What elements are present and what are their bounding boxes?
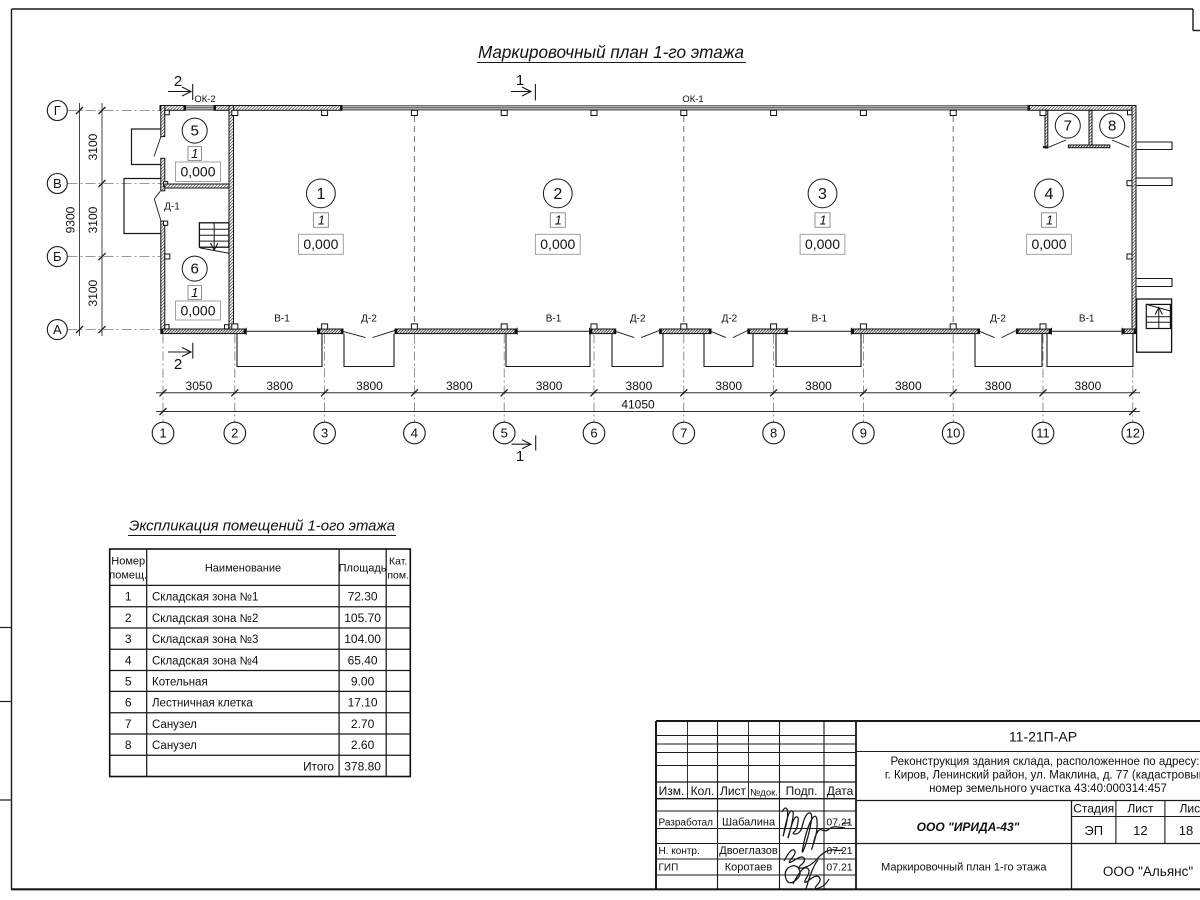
svg-text:3100: 3100 bbox=[86, 133, 100, 160]
svg-text:Экспликация помещений 1-ого эт: Экспликация помещений 1-ого этажа bbox=[129, 519, 395, 535]
svg-text:Лестничная клетка: Лестничная клетка bbox=[152, 698, 253, 710]
svg-text:Д-1: Д-1 bbox=[164, 202, 180, 213]
svg-text:Д-2: Д-2 bbox=[990, 314, 1006, 325]
svg-text:3800: 3800 bbox=[356, 379, 383, 393]
svg-text:3: 3 bbox=[321, 426, 328, 441]
svg-text:1: 1 bbox=[555, 213, 562, 228]
svg-text:41050: 41050 bbox=[621, 398, 655, 412]
svg-text:1: 1 bbox=[516, 72, 524, 89]
svg-text:Складская зона №1: Складская зона №1 bbox=[152, 592, 258, 604]
svg-text:помещ.: помещ. bbox=[109, 570, 147, 582]
svg-text:8: 8 bbox=[770, 426, 777, 441]
svg-text:104.00: 104.00 bbox=[344, 632, 381, 646]
svg-text:2: 2 bbox=[125, 611, 132, 625]
svg-text:3100: 3100 bbox=[86, 279, 100, 306]
svg-text:номер земельного участка 43:40: номер земельного участка 43:40:000314:45… bbox=[929, 783, 1167, 795]
svg-text:5: 5 bbox=[191, 123, 199, 140]
svg-text:Изм.: Изм. bbox=[659, 784, 685, 798]
svg-text:Маркировочный план 1-го этажа: Маркировочный план 1-го этажа bbox=[478, 43, 744, 62]
svg-text:2: 2 bbox=[231, 426, 238, 441]
svg-text:4: 4 bbox=[411, 426, 418, 441]
svg-text:9300: 9300 bbox=[64, 206, 78, 233]
svg-text:0,000: 0,000 bbox=[540, 236, 575, 252]
svg-text:2: 2 bbox=[553, 186, 562, 203]
svg-text:Разработал: Разработал bbox=[659, 817, 714, 829]
svg-text:В-1: В-1 bbox=[812, 314, 828, 325]
svg-text:1: 1 bbox=[191, 146, 198, 161]
svg-text:Санузел: Санузел bbox=[152, 740, 197, 752]
svg-text:Листов: Листов bbox=[1180, 802, 1200, 816]
svg-text:378.80: 378.80 bbox=[344, 760, 381, 774]
svg-text:Двоеглазов: Двоеглазов bbox=[719, 845, 778, 857]
svg-text:9: 9 bbox=[860, 426, 867, 441]
svg-text:3050: 3050 bbox=[186, 379, 213, 393]
svg-text:1: 1 bbox=[318, 213, 325, 228]
svg-text:0,000: 0,000 bbox=[303, 236, 338, 252]
svg-text:105.70: 105.70 bbox=[344, 611, 381, 625]
svg-text:2.70: 2.70 bbox=[351, 717, 375, 731]
svg-text:Г: Г bbox=[54, 103, 61, 118]
svg-text:№док.: №док. bbox=[750, 788, 778, 799]
svg-text:пом.: пом. bbox=[387, 570, 409, 582]
svg-text:Котельная: Котельная bbox=[152, 677, 208, 689]
svg-text:ОК-2: ОК-2 bbox=[194, 94, 215, 105]
svg-text:3800: 3800 bbox=[266, 379, 293, 393]
svg-text:А: А bbox=[53, 322, 62, 337]
svg-text:Кол.: Кол. bbox=[691, 784, 715, 798]
svg-text:17.10: 17.10 bbox=[348, 696, 378, 710]
svg-text:Подп.: Подп. bbox=[786, 784, 818, 798]
svg-text:3100: 3100 bbox=[86, 206, 100, 233]
svg-text:В-1: В-1 bbox=[1079, 314, 1095, 325]
svg-text:Наименование: Наименование bbox=[205, 563, 281, 575]
svg-text:3800: 3800 bbox=[626, 379, 653, 393]
svg-text:Реконструкция здания склада, р: Реконструкция здания склада, расположенн… bbox=[890, 756, 1199, 768]
svg-text:65.40: 65.40 bbox=[348, 653, 378, 667]
svg-text:07.21: 07.21 bbox=[826, 862, 852, 874]
svg-text:1: 1 bbox=[159, 426, 166, 441]
svg-text:0,000: 0,000 bbox=[180, 164, 215, 180]
svg-text:3800: 3800 bbox=[895, 379, 922, 393]
svg-text:12: 12 bbox=[1126, 426, 1140, 441]
svg-text:6: 6 bbox=[191, 261, 199, 278]
svg-text:Итого: Итого bbox=[303, 760, 334, 774]
svg-text:ЭП: ЭП bbox=[1084, 823, 1103, 838]
svg-text:5: 5 bbox=[125, 675, 132, 689]
svg-text:3800: 3800 bbox=[805, 379, 832, 393]
svg-text:Д-2: Д-2 bbox=[630, 314, 646, 325]
svg-text:7: 7 bbox=[680, 426, 687, 441]
svg-text:2: 2 bbox=[174, 356, 182, 373]
svg-text:Кат.: Кат. bbox=[389, 556, 407, 568]
svg-text:6: 6 bbox=[590, 426, 597, 441]
svg-text:72.30: 72.30 bbox=[348, 590, 378, 604]
svg-text:ООО "ИРИДА-43": ООО "ИРИДА-43" bbox=[917, 820, 1020, 834]
svg-text:ОК-1: ОК-1 bbox=[682, 94, 703, 105]
svg-text:7: 7 bbox=[125, 717, 132, 731]
svg-text:2.60: 2.60 bbox=[351, 738, 375, 752]
svg-text:ООО "Альянс": ООО "Альянс" bbox=[1103, 864, 1193, 879]
svg-text:Коротаев: Коротаев bbox=[725, 862, 773, 874]
svg-text:В-1: В-1 bbox=[546, 314, 562, 325]
svg-text:3800: 3800 bbox=[446, 379, 473, 393]
svg-text:Маркировочный план 1-го этажа: Маркировочный план 1-го этажа bbox=[881, 862, 1047, 874]
svg-text:1: 1 bbox=[516, 448, 524, 465]
svg-text:Н. контр.: Н. контр. bbox=[659, 846, 700, 857]
svg-text:18: 18 bbox=[1179, 823, 1193, 838]
svg-text:3800: 3800 bbox=[536, 379, 563, 393]
svg-text:0,000: 0,000 bbox=[805, 236, 840, 252]
svg-text:В-1: В-1 bbox=[274, 314, 290, 325]
svg-text:ГИП: ГИП bbox=[659, 863, 679, 874]
svg-text:Лист: Лист bbox=[720, 784, 747, 798]
svg-text:5: 5 bbox=[501, 426, 508, 441]
svg-text:Площадь: Площадь bbox=[339, 563, 387, 575]
svg-text:11-21П-АР: 11-21П-АР bbox=[1009, 729, 1077, 745]
svg-text:Дата: Дата bbox=[827, 784, 854, 798]
svg-text:г. Киров, Ленинский район, ул.: г. Киров, Ленинский район, ул. Маклина, … bbox=[885, 770, 1200, 782]
svg-text:Лист: Лист bbox=[1127, 802, 1154, 816]
svg-text:10: 10 bbox=[946, 426, 960, 441]
svg-text:3: 3 bbox=[818, 186, 827, 203]
svg-text:2: 2 bbox=[174, 73, 182, 90]
svg-text:Б: Б bbox=[53, 249, 62, 264]
svg-text:1: 1 bbox=[316, 186, 325, 203]
svg-text:0,000: 0,000 bbox=[180, 303, 215, 319]
svg-text:8: 8 bbox=[125, 738, 132, 752]
svg-text:Д-2: Д-2 bbox=[722, 314, 738, 325]
svg-text:Складская зона №2: Складская зона №2 bbox=[152, 613, 258, 625]
svg-text:11: 11 bbox=[1036, 426, 1050, 441]
svg-text:В: В bbox=[53, 176, 62, 191]
svg-text:Складская зона №4: Складская зона №4 bbox=[152, 655, 259, 667]
svg-text:Стадия: Стадия bbox=[1073, 802, 1114, 816]
svg-text:Санузел: Санузел bbox=[152, 719, 197, 731]
svg-text:1: 1 bbox=[819, 213, 826, 228]
svg-text:Д-2: Д-2 bbox=[361, 314, 377, 325]
svg-text:9.00: 9.00 bbox=[351, 675, 375, 689]
svg-text:12: 12 bbox=[1133, 823, 1147, 838]
svg-text:6: 6 bbox=[125, 696, 132, 710]
svg-text:Складская зона №3: Складская зона №3 bbox=[152, 634, 258, 646]
svg-text:1: 1 bbox=[1046, 213, 1053, 228]
svg-text:3800: 3800 bbox=[985, 379, 1012, 393]
svg-text:3800: 3800 bbox=[715, 379, 742, 393]
svg-text:1: 1 bbox=[191, 285, 198, 300]
svg-text:1: 1 bbox=[125, 590, 132, 604]
svg-text:7: 7 bbox=[1064, 118, 1072, 135]
svg-text:Шабалина: Шабалина bbox=[722, 817, 776, 829]
svg-text:4: 4 bbox=[1045, 186, 1054, 203]
svg-text:Номер: Номер bbox=[111, 556, 145, 568]
svg-text:8: 8 bbox=[1108, 118, 1116, 135]
svg-text:4: 4 bbox=[125, 653, 132, 667]
svg-text:3: 3 bbox=[125, 632, 132, 646]
svg-text:0,000: 0,000 bbox=[1031, 236, 1066, 252]
svg-text:3800: 3800 bbox=[1075, 379, 1102, 393]
